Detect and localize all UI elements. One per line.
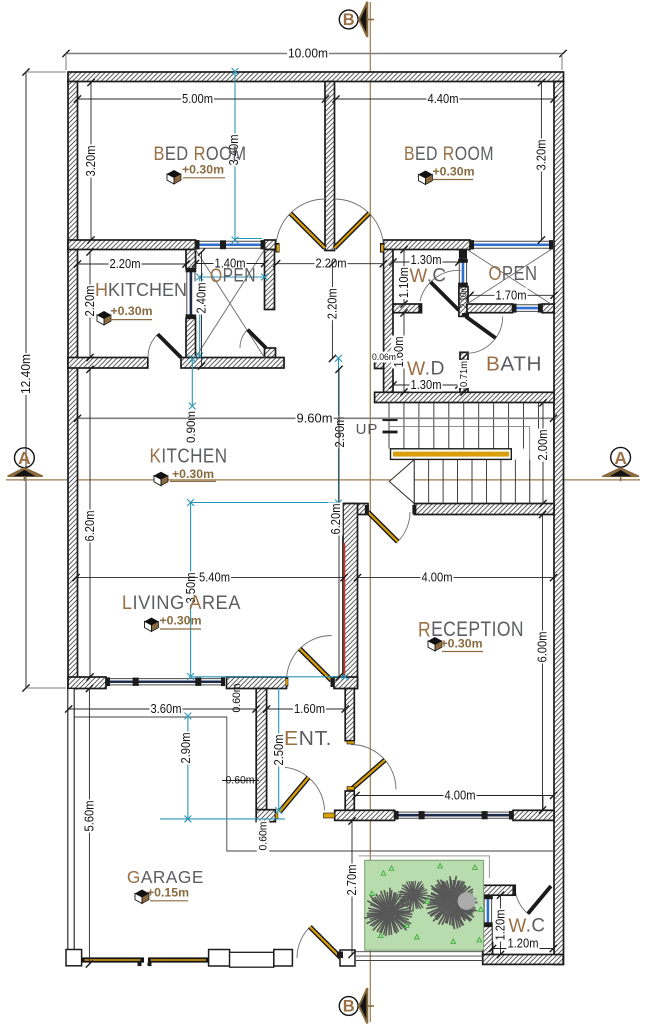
svg-text:9.60m: 9.60m [297, 411, 333, 425]
svg-text:GARAGE: GARAGE [127, 867, 204, 887]
svg-text:A: A [614, 448, 627, 468]
svg-text:5.40m: 5.40m [199, 571, 230, 585]
svg-text:3.20m: 3.20m [534, 140, 548, 171]
svg-text:2.70m: 2.70m [345, 865, 359, 896]
svg-text:LIVING AREA: LIVING AREA [122, 592, 241, 614]
svg-text:5.00m: 5.00m [182, 92, 213, 106]
svg-text:+0.30m: +0.30m [441, 639, 483, 651]
svg-text:BATH: BATH [486, 354, 542, 376]
svg-text:12.40m: 12.40m [19, 354, 33, 394]
svg-text:1.70m: 1.70m [496, 288, 527, 302]
svg-text:0.60m: 0.60m [258, 822, 270, 851]
svg-text:OPEN: OPEN [489, 263, 538, 285]
svg-text:W.C: W.C [410, 266, 447, 287]
svg-text:1.20m: 1.20m [508, 937, 539, 951]
svg-text:BED ROOM: BED ROOM [404, 143, 494, 165]
svg-text:6.20m: 6.20m [83, 511, 97, 542]
svg-text:HKITCHEN: HKITCHEN [95, 280, 187, 300]
svg-text:2.20m: 2.20m [110, 257, 141, 271]
svg-text:6.20m: 6.20m [329, 504, 343, 535]
svg-text:+0.30m: +0.30m [111, 306, 153, 318]
svg-text:1.60m: 1.60m [294, 702, 325, 716]
svg-text:2.90m: 2.90m [333, 417, 347, 448]
svg-text:1.30m: 1.30m [411, 378, 442, 392]
svg-text:+0.30m: +0.30m [182, 165, 224, 177]
svg-text:B: B [343, 11, 355, 29]
svg-text:+0.15m: +0.15m [147, 888, 189, 900]
svg-text:0.90m: 0.90m [184, 411, 198, 443]
svg-text:W.C: W.C [509, 916, 546, 937]
svg-text:1.20m: 1.20m [494, 910, 508, 941]
svg-text:KITCHEN: KITCHEN [150, 446, 228, 468]
svg-text:0.60m: 0.60m [231, 684, 243, 713]
svg-text:4.40m: 4.40m [428, 92, 459, 106]
svg-text:4.00m: 4.00m [422, 571, 453, 585]
svg-text:2.20m: 2.20m [325, 288, 339, 319]
svg-text:0.71m: 0.71m [458, 361, 470, 387]
svg-text:OPEN: OPEN [210, 266, 256, 287]
svg-text:+0.30m: +0.30m [433, 167, 475, 179]
svg-text:+0.30m: +0.30m [160, 616, 202, 628]
svg-text:10.00m: 10.00m [288, 47, 328, 61]
svg-text:ENT.: ENT. [284, 728, 332, 750]
svg-text:+0.30m: +0.30m [172, 469, 214, 481]
svg-text:2.40m: 2.40m [195, 283, 209, 314]
svg-text:2.00m: 2.00m [536, 430, 550, 461]
svg-text:UP: UP [356, 421, 379, 438]
svg-text:A: A [18, 448, 31, 468]
svg-text:BED ROOM: BED ROOM [154, 143, 247, 165]
svg-text:6.00m: 6.00m [536, 632, 550, 663]
svg-text:0.06m: 0.06m [372, 352, 396, 363]
svg-text:0.60m: 0.60m [226, 775, 255, 787]
svg-text:2.90m: 2.90m [179, 733, 193, 764]
svg-text:W.D: W.D [407, 359, 445, 380]
svg-text:3.60m: 3.60m [151, 702, 182, 716]
svg-text:3.20m: 3.20m [84, 146, 98, 177]
svg-text:4.00m: 4.00m [445, 789, 476, 803]
svg-text:2.10m: 2.10m [459, 286, 469, 308]
svg-text:B: B [343, 998, 355, 1016]
svg-text:2.20m: 2.20m [316, 257, 347, 271]
svg-text:5.60m: 5.60m [82, 801, 96, 832]
